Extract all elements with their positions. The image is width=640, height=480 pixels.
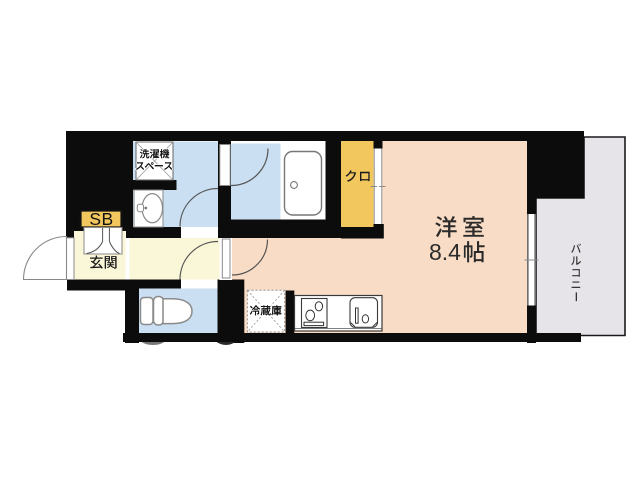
svg-text:8.4: 8.4 xyxy=(429,239,461,265)
svg-text:SB: SB xyxy=(89,209,113,229)
